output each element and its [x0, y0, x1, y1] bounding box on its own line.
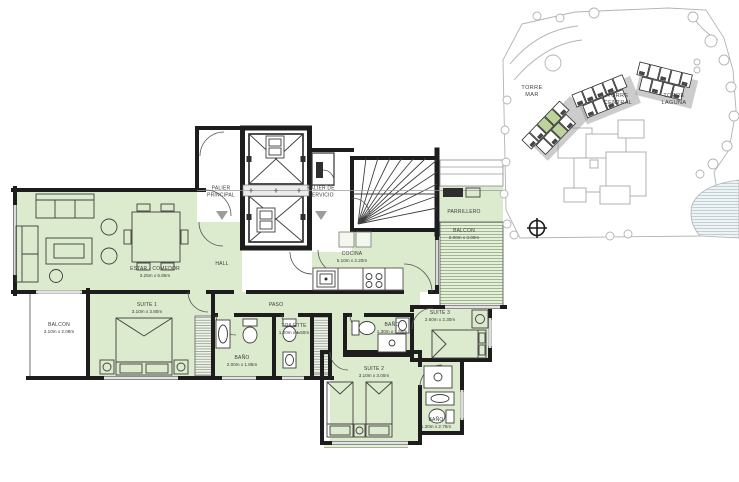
palier-principal-floor: [197, 128, 242, 222]
label-palier-principal: PALIER PRINCIPAL: [203, 186, 239, 199]
label-bano-1: BAÑO 2.00m x 1.85m: [227, 355, 257, 367]
floorplan-page: ESTAR - COMEDOR 3.25m x 6.85m SUITE 1 3.…: [0, 0, 739, 482]
room-dims: 5.10m x 2.20m: [337, 257, 367, 263]
label-bano-3: BAÑO 1.30m x 2.75m: [421, 417, 451, 429]
label-suite-1: SUITE 1 3.10m x 3.80m: [132, 302, 162, 314]
room-name: BALCON: [44, 322, 74, 329]
room-name: PASO: [269, 302, 283, 309]
room-name: HALL: [215, 261, 228, 268]
room-name: PARRILLERO: [447, 209, 480, 216]
label-cocina: COCINA 5.10m x 2.20m: [337, 251, 367, 263]
sink-icon: [426, 392, 454, 405]
label-suite-2: SUITE 2 3.10m x 3.00m: [359, 366, 389, 378]
room-dims: 3.10m x 3.80m: [132, 308, 162, 314]
room-dims: 3.25m x 6.85m: [130, 272, 180, 278]
label-parrillero: PARRILLERO: [447, 209, 480, 216]
shower-icon: [378, 334, 406, 352]
compass-icon: [527, 218, 547, 238]
tower-name: TORRE LAGUNA: [659, 93, 689, 107]
room-dims: 2.00m x 3.00m: [449, 234, 479, 240]
label-balcon-izq: BALCON 3.10m x 2.08m: [44, 322, 74, 334]
label-toilette: TOILETTE 1.20m x 1.50m: [279, 323, 309, 335]
toilet-icon: [352, 321, 375, 335]
site-roads: [510, 12, 718, 80]
label-suite-3: SUITE 3 2.60m x 2.30m: [425, 310, 455, 322]
label-hall: HALL: [215, 261, 228, 268]
label-torre-mar: TORRE MAR: [517, 85, 547, 99]
room-dims: 2.00m x 1.85m: [227, 361, 257, 367]
toilet-icon: [243, 319, 257, 343]
room-hall-fill: [196, 222, 242, 292]
label-balcon-der: BALCON 2.00m x 3.00m: [449, 228, 479, 240]
room-dims: 2.60m x 2.30m: [425, 316, 455, 322]
room-dims: 1.30m x 2.75m: [421, 423, 451, 429]
label-palier-servicio: PALIER DE SERVICIO: [303, 186, 339, 199]
elevator-icon: [243, 134, 309, 242]
shower-icon: [424, 366, 452, 388]
label-torre-central: TORRE CENTRAL: [603, 93, 633, 107]
room-name: ESTAR - COMEDOR: [130, 266, 180, 273]
balcony-left: [30, 292, 88, 378]
lagoon: [691, 180, 739, 238]
plan-drawing: [0, 0, 739, 482]
room-dims: 3.10m x 3.00m: [359, 372, 389, 378]
service-shaft-icon: [312, 153, 334, 185]
parrillero-ledge: [440, 160, 503, 186]
label-estar-comedor: ESTAR - COMEDOR 3.25m x 6.85m: [130, 266, 180, 278]
room-name: TOILETTE: [279, 323, 309, 330]
room-dims: 3.10m x 2.08m: [44, 328, 74, 334]
label-torre-laguna: TORRE LAGUNA: [659, 93, 689, 107]
label-bano-2: BAÑO 1.30m x 1.55m: [377, 322, 407, 334]
cabinet-icon: [356, 232, 371, 247]
site-plan: [500, 8, 739, 240]
label-paso: PASO: [269, 302, 283, 309]
room-dims: 1.30m x 1.55m: [377, 328, 407, 334]
room-name: PALIER PRINCIPAL: [203, 186, 239, 199]
staircase-icon: [352, 158, 437, 224]
closet-suite1-icon: [195, 316, 212, 376]
tower-name: TORRE CENTRAL: [603, 93, 633, 107]
room-name: PALIER DE SERVICIO: [303, 186, 339, 199]
room-name: COCINA: [337, 251, 367, 258]
fridge-icon: [339, 232, 354, 247]
tower-name: TORRE MAR: [517, 85, 547, 99]
floor-plan: [13, 128, 505, 448]
room-dims: 1.20m x 1.50m: [279, 329, 309, 335]
room-name: BALCON: [449, 228, 479, 235]
